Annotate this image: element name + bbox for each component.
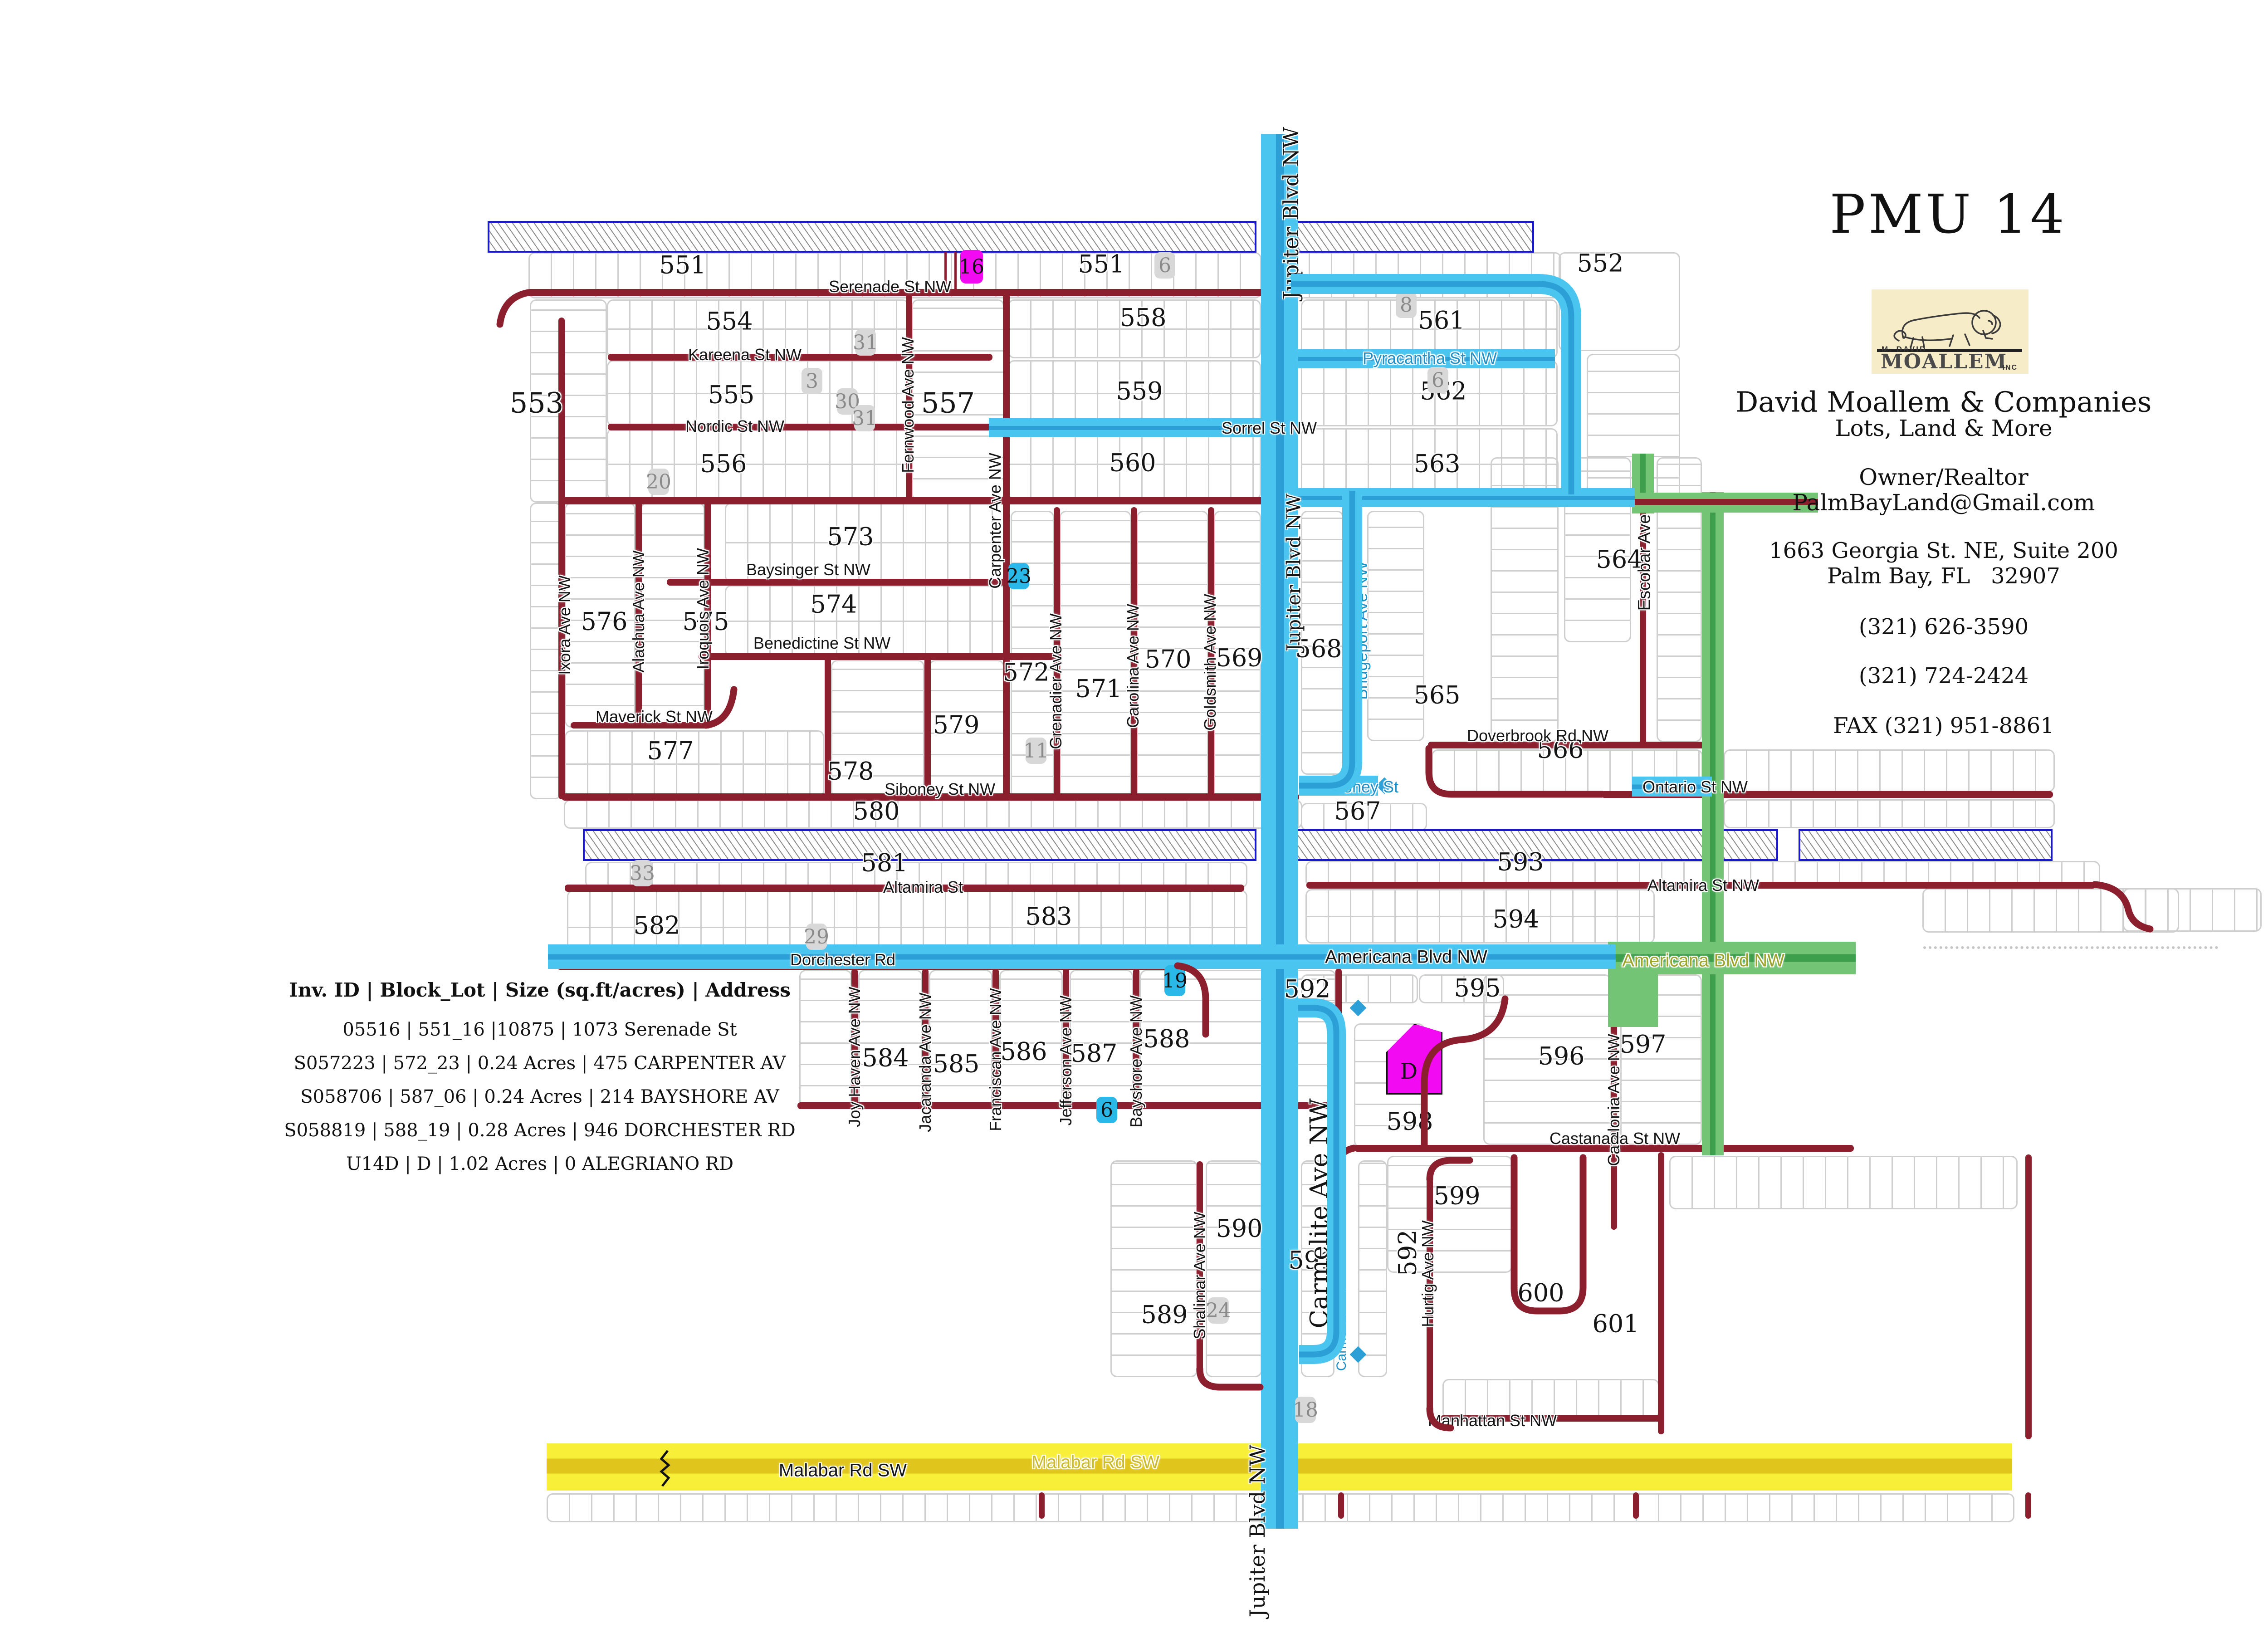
block-label-582: 582 xyxy=(633,911,680,940)
street-label-ixora: Ixora Ave NW xyxy=(555,575,574,675)
company-fax: FAX (321) 951-8861 xyxy=(1833,713,2054,738)
street-label-jupitermid: Jupiter Blvd NW xyxy=(1283,494,1305,651)
street-label-carmelitebig: Carmelite Ave NW xyxy=(1305,1098,1334,1328)
block-label-554: 554 xyxy=(706,307,753,336)
block-label-573: 573 xyxy=(827,523,874,551)
hatched-easement-strip xyxy=(488,221,1256,253)
street-label-doverbrook: Doverbrook Rd NW xyxy=(1467,726,1608,745)
street-road xyxy=(667,579,1012,586)
block-label-577: 577 xyxy=(647,737,694,765)
street-label-iroquois: Iroquois Ave NW xyxy=(694,548,713,669)
lot-marker-8: 8 xyxy=(1396,292,1417,318)
street-label-franciscan: Franciscan Ave NW xyxy=(986,988,1005,1131)
lot-marker-6: 6 xyxy=(1427,367,1448,393)
street-label-altamiranw: Altamira St NW xyxy=(1647,876,1759,895)
company-role: Owner/Realtor xyxy=(1859,464,2028,490)
street-label-altamira: Altamira St xyxy=(883,878,963,897)
lot-marker-16: 16 xyxy=(960,250,983,284)
block-label-572: 572 xyxy=(1002,658,1049,687)
street-label-pyracantha: Pyracantha St NW xyxy=(1363,349,1497,368)
street-label-americanagrn: Americana Blvd NW xyxy=(1622,951,1784,971)
street-label-siboneynw: Siboney St NW xyxy=(885,780,995,799)
inventory-row: U14D | D | 1.02 Acres | 0 ALEGRIANO RD xyxy=(272,1154,807,1174)
block-label-580: 580 xyxy=(853,797,899,826)
block-label-590: 590 xyxy=(1216,1214,1262,1243)
lot-grid-block xyxy=(1206,1160,1262,1377)
block-label-571: 571 xyxy=(1075,675,1122,703)
street-road xyxy=(608,424,992,430)
street-label-baysinger: Baysinger St NW xyxy=(746,560,870,579)
block-label-583: 583 xyxy=(1025,902,1072,931)
block-label-574: 574 xyxy=(810,590,857,619)
street-road xyxy=(1335,968,1342,1105)
street-label-escobar: Escobar Ave xyxy=(1635,514,1655,611)
street-label-alachua: Alachua Ave NW xyxy=(629,550,648,672)
street-label-grenadier: Grenadier Ave NW xyxy=(1046,613,1066,749)
lot-marker-20: 20 xyxy=(648,469,669,495)
block-label-578: 578 xyxy=(827,757,874,786)
tick-mark xyxy=(954,252,957,291)
street-label-carolina: Carolina Ave NW xyxy=(1124,604,1143,728)
logo-inc-text: INC xyxy=(2002,364,2018,372)
block-label-551: 551 xyxy=(659,251,706,279)
lot-grid-block xyxy=(1724,749,2055,792)
block-label-601: 601 xyxy=(1592,1310,1639,1338)
street-label-jefferson: Jefferson Ave NW xyxy=(1056,996,1075,1126)
block-label-556: 556 xyxy=(700,450,747,478)
street-road xyxy=(1658,1152,1664,1434)
lot-marker-3: 3 xyxy=(802,368,822,394)
block-label-579: 579 xyxy=(933,711,979,739)
plat-map-page: 5515515525535545555565575585595605615625… xyxy=(0,0,2268,1633)
logo-name-text: MOALLEM xyxy=(1881,350,2007,373)
street-label-dorchester: Dorchester Rd xyxy=(790,950,895,969)
dotted-lot-row xyxy=(1923,946,2218,949)
street-label-adventure: Adventure Ave NW xyxy=(1563,322,1582,460)
inventory-row: S058706 | 587_06 | 0.24 Acres | 214 BAYS… xyxy=(272,1086,807,1107)
street-label-benedictine: Benedictine St NW xyxy=(753,634,890,653)
street-label-nordic: Nordic St NW xyxy=(685,417,784,436)
lot-marker-23: 23 xyxy=(1008,563,1029,589)
block-label-565: 565 xyxy=(1413,681,1460,709)
lot-grid-block xyxy=(1286,252,1561,298)
block-label-595: 595 xyxy=(1454,974,1501,1002)
street-road xyxy=(2025,1492,2031,1519)
block-label-569: 569 xyxy=(1216,644,1262,672)
block-label-587: 587 xyxy=(1070,1039,1117,1068)
block-label-597: 597 xyxy=(1619,1030,1666,1059)
lot-grid-block xyxy=(565,730,824,797)
street-label-jupiterbot: Jupiter Blvd NW xyxy=(1245,1445,1270,1618)
street-label-sorrel: Sorrel St NW xyxy=(1222,419,1317,438)
lot-marker-19: 19 xyxy=(1164,965,1185,996)
street-road xyxy=(1039,1492,1045,1519)
blue-highlight-road xyxy=(1298,488,1635,507)
block-label-600: 600 xyxy=(1517,1279,1564,1307)
block-label-563: 563 xyxy=(1413,450,1460,478)
street-label-joyhaven: Joy Haven Ave NW xyxy=(845,987,864,1127)
lot-grid-block xyxy=(564,800,1302,829)
green-highlight-road xyxy=(1702,492,1724,1155)
inventory-row: S057223 | 572_23 | 0.24 Acres | 475 CARP… xyxy=(272,1053,807,1074)
block-label-598: 598 xyxy=(1386,1107,1433,1136)
street-label-serenade: Serenade St NW xyxy=(829,277,951,296)
street-label-hurtig: Hurtig Ave NW xyxy=(1418,1220,1437,1327)
street-label-bridgeport: Bridgeport Ave NW xyxy=(1352,561,1371,699)
company-name: David Moallem & Companies xyxy=(1736,386,2152,419)
block-label-560: 560 xyxy=(1109,449,1156,477)
block-label-584: 584 xyxy=(862,1044,909,1072)
lot-marker-6: 6 xyxy=(1096,1097,1117,1123)
block-label-558: 558 xyxy=(1119,303,1166,332)
street-road xyxy=(1633,1492,1639,1519)
street-label-carmeliteblue: Carmelite Ave NW xyxy=(1334,1260,1349,1371)
block-label-599: 599 xyxy=(1433,1182,1480,1210)
hatched-easement-strip xyxy=(1285,221,1534,253)
street-label-ontario: Ontario St NW xyxy=(1642,777,1748,797)
block-label-589: 589 xyxy=(1141,1301,1188,1329)
street-label-siboneyblue: Siboney St xyxy=(1320,777,1398,797)
lot-grid-block xyxy=(1724,799,2055,828)
street-label-carpenter: Carpenter Ave NW xyxy=(986,453,1005,588)
company-tagline: Lots, Land & More xyxy=(1835,415,2052,441)
lot-marker-31: 31 xyxy=(854,405,875,431)
page-title: PMU 14 xyxy=(1829,183,2067,245)
street-label-jacaranda: Jacaranda Ave NW xyxy=(916,993,935,1132)
lot-marker-33: 33 xyxy=(632,860,653,886)
block-label-594: 594 xyxy=(1492,905,1539,934)
moallem-logo: M. DAVID MOALLEM INC xyxy=(1872,289,2028,374)
block-label-585: 585 xyxy=(933,1050,979,1078)
street-label-goldsmith: Goldsmith Ave NW xyxy=(1201,594,1220,730)
green-highlight-road xyxy=(1608,974,1658,1027)
block-label-567: 567 xyxy=(1334,797,1381,826)
hatched-easement-strip xyxy=(583,829,1256,861)
lot-marker-6: 6 xyxy=(1154,252,1175,279)
inventory-header: Inv. ID | Block_Lot | Size (sq.ft/acres)… xyxy=(272,979,807,1001)
block-label-592: 592 xyxy=(1393,1229,1422,1276)
lot-marker-D-label: D xyxy=(1400,1059,1417,1084)
lot-grid-block xyxy=(1358,1160,1387,1377)
inventory-list: Inv. ID | Block_Lot | Size (sq.ft/acres)… xyxy=(272,979,807,1187)
lot-grid-block xyxy=(1110,1160,1198,1377)
hatched-easement-strip xyxy=(1799,829,2053,861)
road-centerline xyxy=(1632,499,1818,505)
street-label-maverick: Maverick St NW xyxy=(596,707,713,726)
lot-grid-block xyxy=(929,970,992,1108)
block-label-588: 588 xyxy=(1143,1025,1190,1053)
block-label-551: 551 xyxy=(1078,250,1124,279)
street-label-bayshore: Bayshore Ave NW xyxy=(1127,995,1146,1127)
inventory-row: S058819 | 588_19 | 0.28 Acres | 946 DORC… xyxy=(272,1120,807,1141)
block-label-593: 593 xyxy=(1497,848,1544,876)
blue-highlight-road xyxy=(989,418,1261,437)
block-label-586: 586 xyxy=(1000,1037,1047,1066)
company-phone2: (321) 724-2424 xyxy=(1859,663,2028,689)
block-label-555: 555 xyxy=(708,381,754,409)
block-label-576: 576 xyxy=(581,607,627,636)
lot-grid-block xyxy=(858,970,923,1108)
blue-highlight-road xyxy=(1261,134,1298,1529)
block-label-559: 559 xyxy=(1116,377,1163,406)
block-label-552: 552 xyxy=(1577,249,1623,278)
street-road xyxy=(924,653,931,798)
block-label-561: 561 xyxy=(1418,306,1465,335)
lot-grid-block xyxy=(2123,888,2262,932)
company-phone1: (321) 626-3590 xyxy=(1859,614,2028,640)
street-label-americanablk: Americana Blvd NW xyxy=(1325,947,1487,968)
street-road xyxy=(562,497,1280,504)
street-label-fernwood: Fernwood Ave NW xyxy=(899,337,918,473)
street-road xyxy=(1338,1492,1344,1519)
block-label-570: 570 xyxy=(1144,645,1191,674)
street-label-kareena: Kareena St NW xyxy=(688,345,802,364)
lot-marker-24: 24 xyxy=(1208,1297,1229,1324)
company-email: PalmBayLand@Gmail.com xyxy=(1792,489,2095,516)
block-label-557: 557 xyxy=(921,386,975,420)
lot-marker-31: 31 xyxy=(855,329,876,356)
lot-grid-block xyxy=(1060,511,1131,798)
inventory-row: 05516 | 551_16 |10875 | 1073 Serenade St xyxy=(272,1019,807,1040)
block-label-553: 553 xyxy=(510,386,563,420)
street-road xyxy=(2025,1154,2032,1439)
street-label-manhattan: Manhattan St NW xyxy=(1428,1411,1557,1430)
lot-grid-block xyxy=(1305,889,1655,944)
street-label-malabarolv: Malabar Rd SW xyxy=(1031,1452,1159,1473)
block-label-592: 592 xyxy=(1284,975,1330,1003)
company-address2: Palm Bay, FL 32907 xyxy=(1827,563,2060,589)
block-label-581: 581 xyxy=(861,849,908,877)
street-label-castanada: Castanada St NW xyxy=(1549,1129,1680,1148)
lot-grid-block xyxy=(1669,1156,2018,1209)
street-label-jupitertop: Jupiter Blvd NW xyxy=(1279,127,1303,300)
company-address1: 1663 Georgia St. NE, Suite 200 xyxy=(1769,538,2118,563)
lot-marker-11: 11 xyxy=(1026,738,1046,764)
street-label-malabarblk: Malabar Rd SW xyxy=(779,1461,907,1481)
lot-marker-18: 18 xyxy=(1295,1397,1316,1423)
block-label-596: 596 xyxy=(1538,1042,1584,1071)
lot-marker-29: 29 xyxy=(806,924,827,950)
